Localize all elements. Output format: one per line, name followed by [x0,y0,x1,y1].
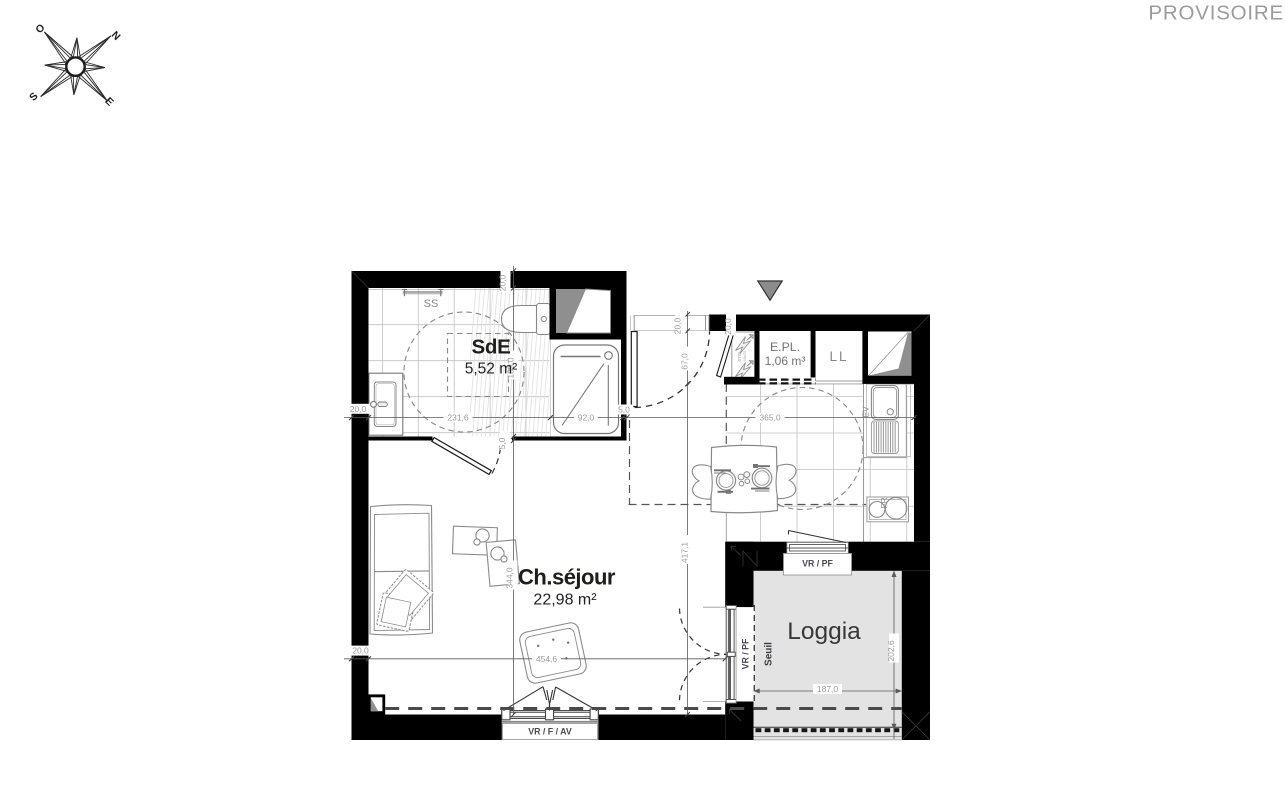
svg-text:VR / PF: VR / PF [802,559,833,569]
svg-text:22,98 m²: 22,98 m² [533,592,597,609]
svg-text:VR / PF: VR / PF [741,638,751,669]
svg-text:417,1: 417,1 [680,542,690,564]
svg-text:20,0: 20,0 [673,317,683,334]
svg-text:344,0: 344,0 [505,567,515,589]
svg-text:LL: LL [829,349,848,364]
svg-text:Seuil: Seuil [764,642,775,666]
svg-text:1,06 m³: 1,06 m³ [765,354,806,368]
svg-text:454,6: 454,6 [536,654,558,664]
svg-text:Ch.séjour: Ch.séjour [518,565,616,590]
svg-text:VR / F / AV: VR / F / AV [528,727,572,737]
svg-text:67,0: 67,0 [680,353,690,370]
svg-text:20,0: 20,0 [352,646,369,656]
svg-text:20,0: 20,0 [723,318,733,335]
svg-text:5,0: 5,0 [497,437,507,449]
svg-text:FR: FR [879,497,889,508]
svg-text:EV: EV [861,406,871,418]
svg-text:202,6: 202,6 [886,640,896,662]
svg-text:20,0: 20,0 [498,274,508,291]
svg-text:SS: SS [424,298,439,310]
svg-text:92,0: 92,0 [578,413,595,423]
svg-text:E.PL.: E.PL. [770,340,800,354]
svg-text:187,0: 187,0 [817,684,839,694]
svg-text:365,0: 365,0 [759,413,781,423]
svg-text:SdE: SdE [472,336,511,359]
svg-text:20,0: 20,0 [350,404,367,414]
svg-text:5,0: 5,0 [618,405,630,415]
svg-text:PROVISOIRE: PROVISOIRE [1148,2,1284,25]
svg-text:60x25: 60x25 [742,350,747,362]
svg-text:231,6: 231,6 [447,413,469,423]
svg-text:5,52 m²: 5,52 m² [465,361,518,378]
svg-text:Loggia: Loggia [787,618,861,645]
